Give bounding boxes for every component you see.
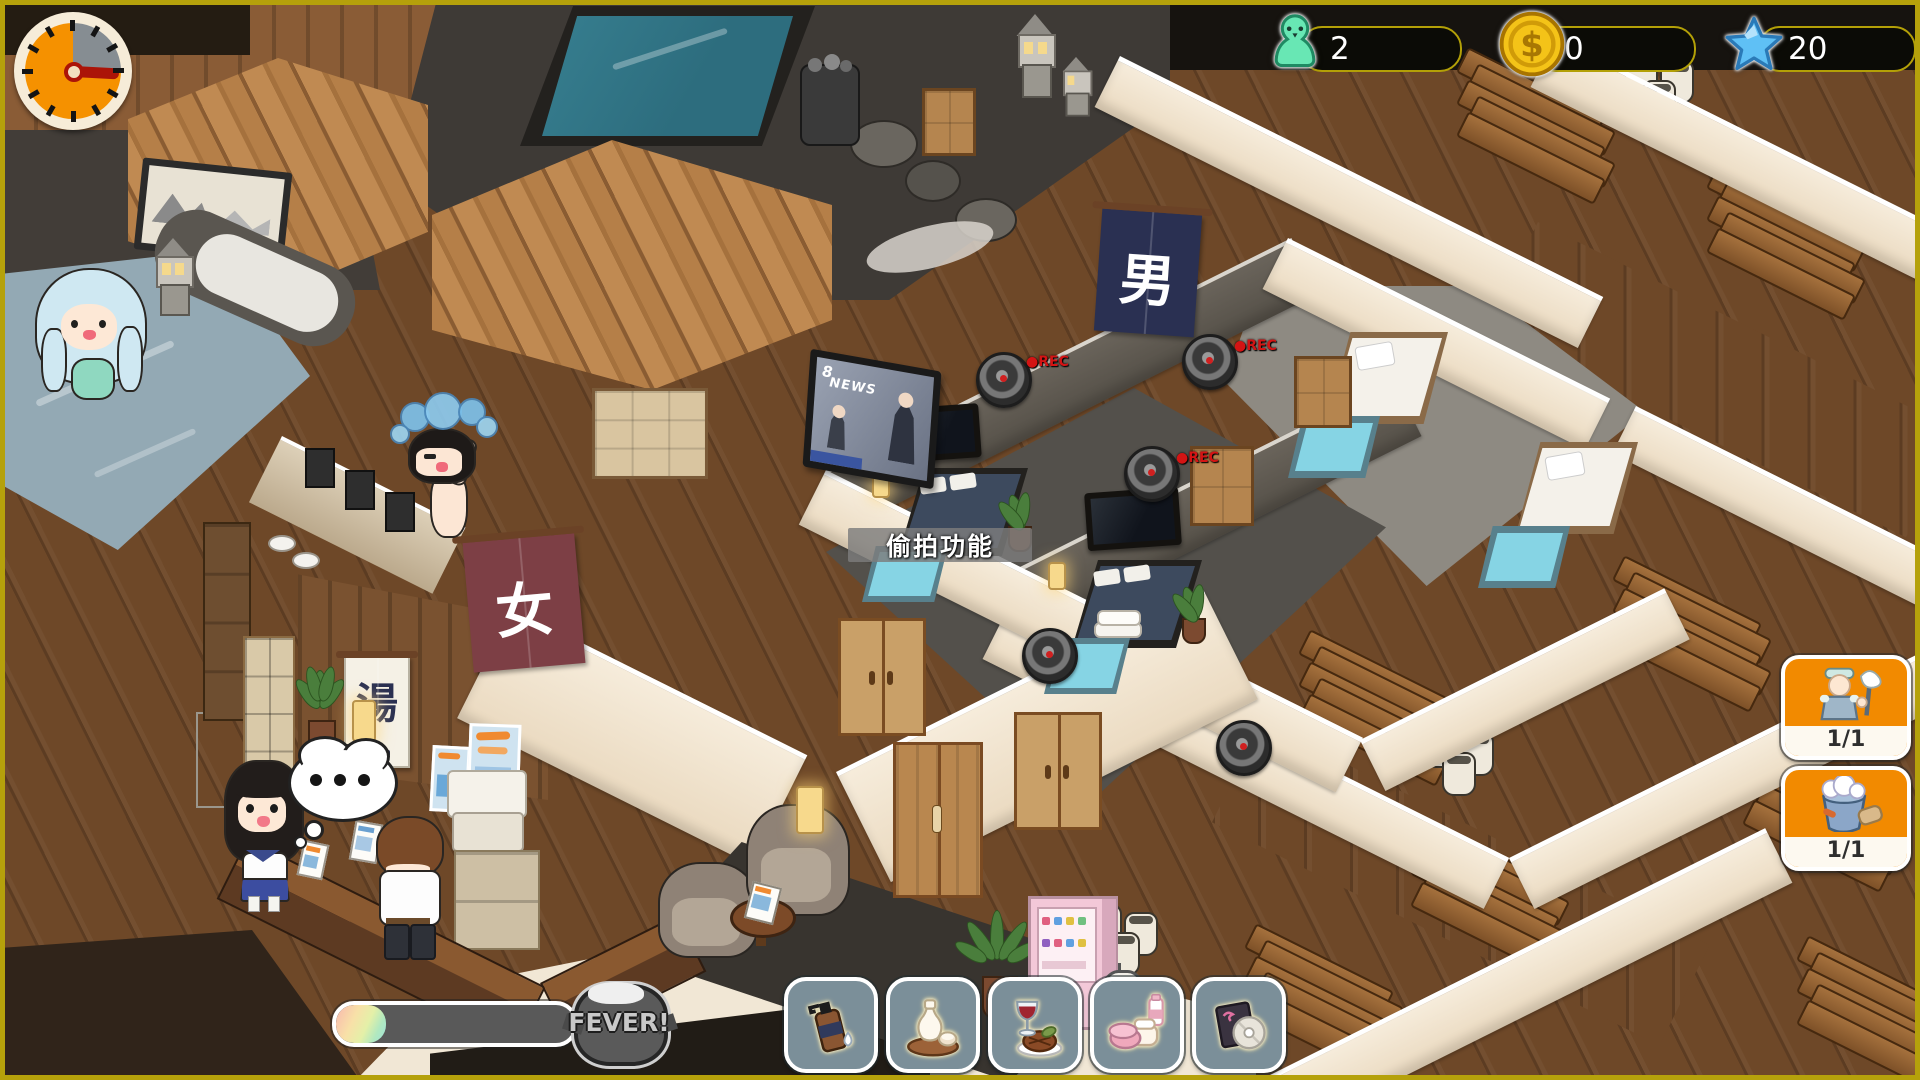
cosmetics-icon bbox=[1106, 991, 1168, 1059]
bath-bucket-count: 1/1 bbox=[1785, 837, 1907, 867]
women-kanji: 女 bbox=[465, 559, 584, 652]
wood-pile bbox=[1790, 968, 1920, 1080]
women-bath-noren: 女 bbox=[463, 533, 586, 672]
wash-bowl bbox=[292, 552, 320, 569]
hanging-lantern bbox=[796, 786, 824, 834]
rec-indicator: ●REC bbox=[1176, 450, 1219, 466]
spy-camera-fan[interactable] bbox=[1216, 720, 1272, 776]
bubble-dot bbox=[358, 774, 370, 786]
stone-lantern bbox=[1057, 57, 1094, 113]
item-cosmetics-button[interactable] bbox=[1090, 977, 1184, 1073]
bath-bucket-button[interactable]: 1/1 bbox=[1781, 766, 1911, 871]
meal-wine-icon bbox=[1004, 991, 1066, 1059]
cleaning-staff-count: 1/1 bbox=[1785, 726, 1907, 756]
svg-text:$: $ bbox=[1520, 26, 1544, 66]
item-sake-button[interactable] bbox=[886, 977, 980, 1073]
fever-bar-fill bbox=[336, 1005, 386, 1043]
side-table bbox=[730, 892, 792, 948]
star-icon bbox=[1722, 12, 1786, 76]
men-kanji: 男 bbox=[1095, 233, 1200, 321]
spy-camera-fan[interactable] bbox=[1182, 334, 1238, 390]
shower-mirror bbox=[305, 448, 335, 488]
room-bath bbox=[1478, 526, 1570, 588]
sake-set-icon bbox=[902, 991, 964, 1059]
lobby-tv: 8 NEWS bbox=[803, 349, 942, 490]
bubble-dot bbox=[310, 774, 322, 786]
feature-tooltip: 偷拍功能 bbox=[848, 528, 1032, 562]
rock bbox=[905, 160, 961, 202]
cleaning-staff-icon bbox=[1785, 659, 1907, 726]
spy-camera-fan[interactable] bbox=[1022, 628, 1078, 684]
stone-lantern bbox=[1008, 14, 1062, 98]
shampoo-bottle-icon bbox=[800, 991, 862, 1059]
clock-center-cap bbox=[64, 62, 84, 82]
guest-pawn-icon bbox=[1264, 12, 1326, 78]
fever-label: FEVER! bbox=[564, 1008, 674, 1037]
rock bbox=[850, 120, 918, 168]
spy-camera-fan[interactable] bbox=[1124, 446, 1180, 502]
guest-bed bbox=[1516, 442, 1638, 534]
news-logo: NEWS bbox=[829, 375, 877, 398]
bath-bucket-icon bbox=[1785, 770, 1907, 837]
wash-bowl bbox=[268, 535, 296, 552]
stone-lantern bbox=[148, 238, 198, 318]
guest-bathing-blue-hair[interactable] bbox=[35, 268, 147, 400]
clock-tick bbox=[70, 20, 75, 31]
room-plant bbox=[1174, 586, 1208, 642]
day-timer-clock bbox=[14, 12, 132, 130]
item-cd-button[interactable] bbox=[1192, 977, 1286, 1073]
rec-indicator: ●REC bbox=[1234, 338, 1277, 354]
men-bath-noren: 男 bbox=[1094, 209, 1202, 338]
clock-tick bbox=[113, 68, 124, 73]
room-wardrobe bbox=[838, 618, 926, 736]
shower-mirror bbox=[345, 470, 375, 510]
deck-cabinet bbox=[922, 88, 976, 156]
lounge-door bbox=[893, 742, 983, 898]
thought-bubble bbox=[288, 736, 398, 846]
cd-disc-icon bbox=[1208, 991, 1270, 1059]
bubble-dot bbox=[334, 774, 346, 786]
clock-tick bbox=[22, 69, 33, 74]
spy-camera-fan[interactable] bbox=[976, 352, 1032, 408]
room-cabinet bbox=[1294, 356, 1352, 428]
fever-bar bbox=[332, 1001, 578, 1047]
item-meal-button[interactable] bbox=[988, 977, 1082, 1073]
game-screen: ●REC ●REC ●REC 男 女 8 NEWS bbox=[0, 0, 1920, 1080]
coin-icon: $ bbox=[1498, 10, 1566, 78]
fever-badge: FEVER! bbox=[564, 982, 674, 1064]
locker-shelf bbox=[592, 388, 708, 479]
cleaning-staff-button[interactable]: 1/1 bbox=[1781, 655, 1911, 760]
item-shampoo-button[interactable] bbox=[784, 977, 878, 1073]
room-wardrobe bbox=[1014, 712, 1102, 830]
clock-tick bbox=[71, 111, 76, 122]
rec-indicator: ●REC bbox=[1026, 354, 1069, 370]
guest-showering[interactable] bbox=[396, 404, 496, 540]
sauna-heater bbox=[800, 64, 860, 146]
wall-lamp bbox=[1048, 562, 1066, 590]
storage-boxes bbox=[444, 770, 544, 950]
towel-stack bbox=[1094, 610, 1140, 636]
